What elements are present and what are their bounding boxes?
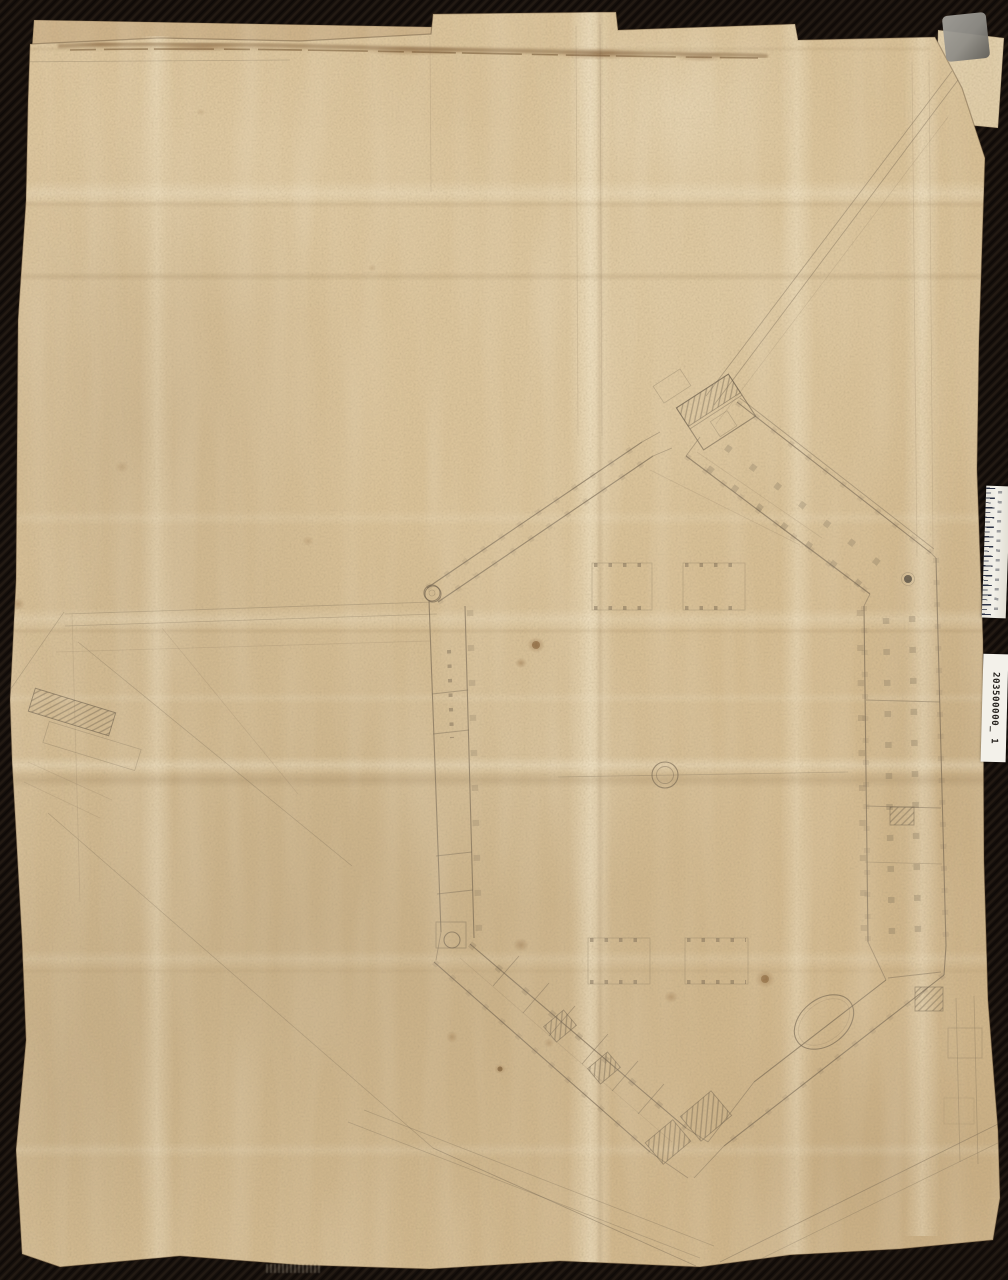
bottom-scale-mark <box>266 1264 320 1273</box>
sheet-clamp <box>942 12 991 62</box>
paper-grain <box>0 0 1008 1280</box>
archival-label: 203500000_ 1 <box>981 654 1008 763</box>
color-calibration-ruler <box>982 486 1008 619</box>
ruler-number-marks <box>994 488 1002 616</box>
scan-canvas <box>0 0 1008 1280</box>
archival-label-text: 203500000_ 1 <box>989 672 1001 744</box>
scanned-plan-page: 203500000_ 1 <box>0 0 1008 1280</box>
